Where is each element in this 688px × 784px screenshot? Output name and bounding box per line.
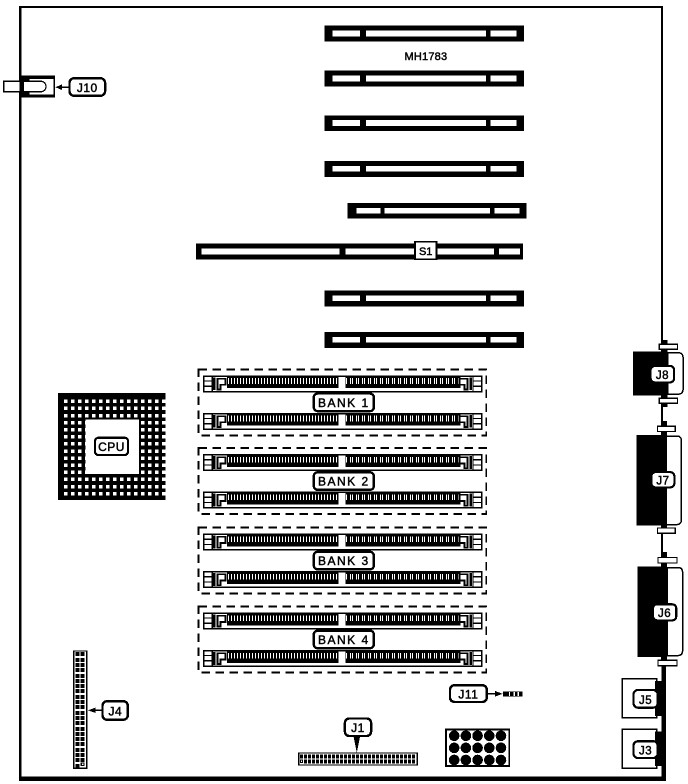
svg-text:CPU: CPU — [98, 440, 125, 454]
svg-text:J1: J1 — [351, 721, 365, 735]
svg-text:S1: S1 — [419, 246, 432, 258]
svg-text:J6: J6 — [658, 608, 671, 620]
svg-text:J11: J11 — [458, 687, 478, 701]
svg-text:J3: J3 — [639, 746, 652, 758]
svg-text:J10: J10 — [77, 81, 98, 95]
svg-text:BANK 2: BANK 2 — [318, 475, 370, 489]
svg-text:BANK 3: BANK 3 — [318, 554, 370, 568]
svg-text:J5: J5 — [639, 695, 652, 707]
svg-text:J4: J4 — [108, 704, 122, 718]
svg-text:BANK 1: BANK 1 — [318, 396, 370, 410]
svg-text:MH1783: MH1783 — [405, 51, 448, 63]
svg-text:BANK 4: BANK 4 — [318, 633, 370, 647]
svg-text:J8: J8 — [656, 370, 669, 382]
svg-text:J7: J7 — [656, 475, 669, 487]
